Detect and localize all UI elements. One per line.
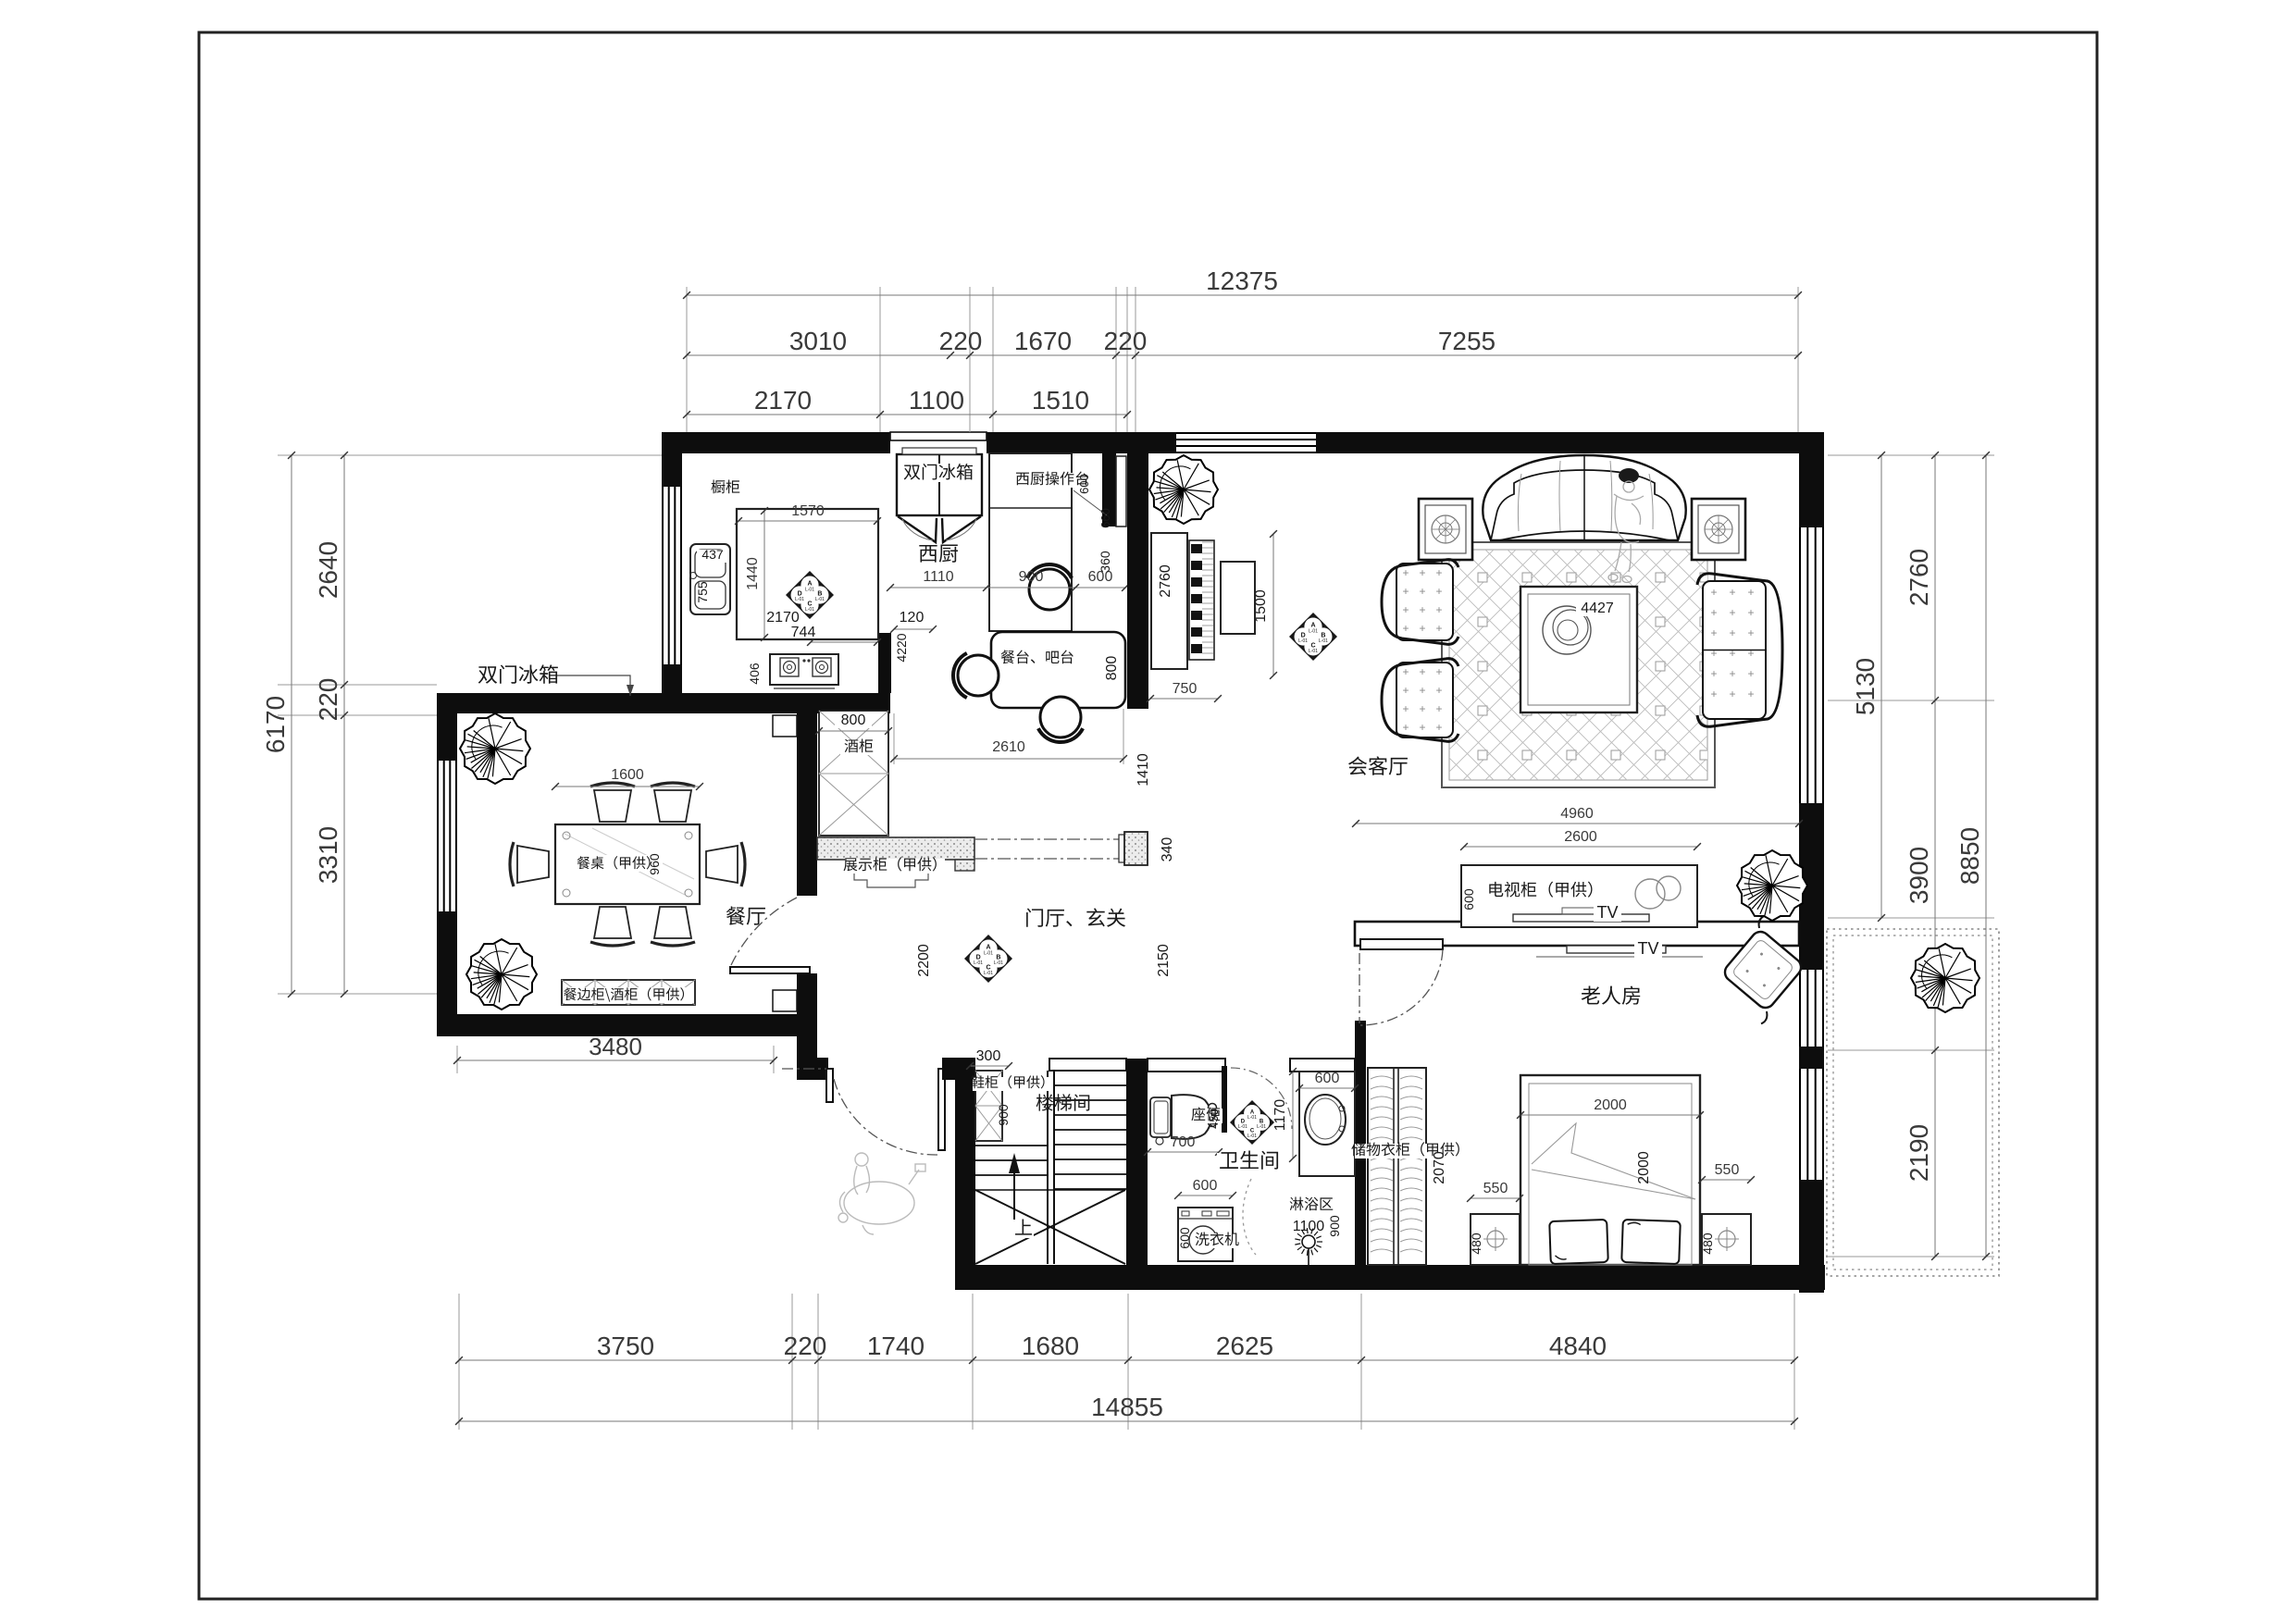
svg-text:600: 600 (1077, 474, 1091, 494)
svg-text:900: 900 (996, 1104, 1011, 1126)
svg-text:L-01: L-01 (795, 597, 804, 602)
svg-text:+: + (1747, 626, 1754, 639)
svg-text:220: 220 (314, 678, 342, 722)
svg-text:TV: TV (1596, 903, 1618, 922)
svg-text:L-01: L-01 (815, 597, 825, 602)
svg-text:+: + (1419, 665, 1425, 678)
svg-text:+: + (1435, 622, 1442, 635)
svg-text:L-01: L-01 (1298, 638, 1308, 644)
svg-text:2000: 2000 (1636, 1151, 1652, 1184)
svg-text:+: + (1435, 702, 1442, 715)
svg-text:L-01: L-01 (994, 960, 1003, 966)
svg-text:L-01: L-01 (1309, 649, 1318, 654)
svg-text:437: 437 (701, 547, 724, 562)
svg-text:L-01: L-01 (984, 971, 993, 976)
svg-text:4960: 4960 (1560, 806, 1594, 822)
svg-text:2760: 2760 (1905, 549, 1933, 606)
svg-text:+: + (1402, 665, 1409, 678)
svg-text:+: + (1402, 702, 1409, 715)
svg-text:+: + (1747, 647, 1754, 660)
svg-text:+: + (1747, 586, 1754, 599)
svg-text:3900: 3900 (1905, 847, 1933, 904)
svg-text:3750: 3750 (597, 1332, 654, 1360)
svg-text:2190: 2190 (1905, 1124, 1933, 1182)
svg-text:L-01: L-01 (1238, 1124, 1247, 1130)
svg-text:480: 480 (1469, 1233, 1483, 1255)
svg-text:+: + (1402, 622, 1409, 635)
svg-text:1570: 1570 (791, 503, 825, 519)
svg-text:2625: 2625 (1216, 1332, 1273, 1360)
svg-text:750: 750 (1173, 681, 1198, 697)
svg-text:600: 600 (1315, 1071, 1340, 1086)
svg-text:+: + (1419, 585, 1425, 598)
svg-text:+: + (1435, 665, 1442, 678)
svg-text:+: + (1419, 603, 1425, 616)
svg-text:+: + (1710, 606, 1717, 619)
svg-text:2150: 2150 (1156, 944, 1172, 977)
svg-text:406: 406 (747, 663, 762, 685)
svg-text:600: 600 (1193, 1178, 1218, 1194)
svg-text:1100: 1100 (909, 386, 964, 415)
svg-text:3310: 3310 (314, 826, 342, 884)
svg-text:+: + (1402, 721, 1409, 734)
svg-text:+: + (1435, 585, 1442, 598)
svg-text:L-01: L-01 (1319, 638, 1328, 644)
svg-text:+: + (1419, 684, 1425, 697)
svg-text:5130: 5130 (1851, 658, 1880, 715)
svg-text:+: + (1435, 684, 1442, 697)
svg-text:2600: 2600 (1564, 829, 1597, 845)
svg-text:2000: 2000 (1594, 1097, 1627, 1113)
svg-text:+: + (1402, 684, 1409, 697)
svg-text:+: + (1419, 702, 1425, 715)
svg-text:+: + (1435, 721, 1442, 734)
svg-text:+: + (1710, 647, 1717, 660)
svg-text:+: + (1402, 603, 1409, 616)
svg-text:14855: 14855 (1091, 1393, 1163, 1421)
svg-text:+: + (1710, 586, 1717, 599)
svg-text:2170: 2170 (766, 610, 800, 626)
svg-text:+: + (1435, 603, 1442, 616)
svg-text:2610: 2610 (992, 739, 1025, 755)
svg-text:900: 900 (1019, 569, 1044, 585)
svg-text:360: 360 (1098, 551, 1112, 573)
svg-text:+: + (1419, 566, 1425, 579)
svg-text:300: 300 (976, 1048, 1001, 1064)
svg-text:+: + (1729, 667, 1735, 680)
svg-text:744: 744 (791, 625, 816, 640)
svg-text:600: 600 (1177, 1227, 1192, 1249)
svg-text:900: 900 (1327, 1215, 1342, 1237)
svg-text:700: 700 (1171, 1134, 1196, 1150)
svg-text:800: 800 (841, 712, 866, 728)
svg-text:+: + (1419, 721, 1425, 734)
svg-text:4840: 4840 (1549, 1332, 1607, 1360)
svg-text:7255: 7255 (1438, 327, 1496, 355)
svg-text:2200: 2200 (916, 944, 932, 977)
svg-text:+: + (1402, 566, 1409, 579)
svg-text:550: 550 (1483, 1181, 1508, 1196)
svg-text:755: 755 (695, 581, 710, 603)
svg-text:1670: 1670 (1014, 327, 1072, 355)
svg-text:+: + (1729, 586, 1735, 599)
svg-text:2170: 2170 (754, 386, 812, 415)
svg-text:220: 220 (1104, 327, 1148, 355)
svg-text:660: 660 (1098, 508, 1112, 528)
svg-text:L-01: L-01 (805, 607, 814, 613)
svg-text:+: + (1710, 688, 1717, 700)
svg-text:480: 480 (1700, 1233, 1715, 1255)
svg-text:4220: 4220 (894, 633, 909, 662)
svg-text:600: 600 (1461, 888, 1476, 911)
svg-text:L-01: L-01 (1247, 1115, 1257, 1121)
svg-text:+: + (1435, 566, 1442, 579)
svg-text:8850: 8850 (1955, 827, 1984, 885)
svg-text:L-01: L-01 (805, 587, 814, 592)
svg-text:+: + (1402, 585, 1409, 598)
svg-text:220: 220 (939, 327, 983, 355)
svg-text:+: + (1710, 626, 1717, 639)
svg-text:+: + (1729, 647, 1735, 660)
svg-text:L-01: L-01 (1309, 628, 1318, 634)
svg-text:+: + (1419, 622, 1425, 635)
svg-text:+: + (1747, 688, 1754, 700)
svg-text:1440: 1440 (745, 557, 761, 590)
svg-text:L-01: L-01 (984, 950, 993, 956)
svg-text:1410: 1410 (1136, 753, 1151, 787)
svg-text:2070: 2070 (1432, 1151, 1447, 1184)
svg-text:1110: 1110 (923, 569, 953, 585)
svg-text:+: + (1729, 606, 1735, 619)
svg-text:1680: 1680 (1022, 1332, 1079, 1360)
svg-text:2760: 2760 (1158, 564, 1173, 598)
svg-text:+: + (1729, 688, 1735, 700)
svg-text:2640: 2640 (314, 541, 342, 599)
svg-text:1170: 1170 (1272, 1099, 1288, 1132)
svg-text:+: + (1747, 667, 1754, 680)
svg-text:800: 800 (1104, 656, 1120, 681)
svg-text:1740: 1740 (867, 1332, 925, 1360)
svg-text:+: + (1710, 667, 1717, 680)
svg-text:4427: 4427 (1581, 601, 1614, 616)
svg-text:L-01: L-01 (974, 960, 983, 966)
svg-text:340: 340 (1160, 837, 1175, 862)
svg-text:TV: TV (1637, 939, 1658, 958)
svg-text:1510: 1510 (1032, 386, 1089, 415)
svg-text:1100: 1100 (1293, 1219, 1325, 1234)
svg-text:L-01: L-01 (1247, 1134, 1257, 1139)
svg-text:1600: 1600 (611, 767, 644, 783)
svg-text:120: 120 (900, 610, 925, 626)
svg-text:L-01: L-01 (1257, 1124, 1266, 1130)
svg-text:+: + (1729, 626, 1735, 639)
svg-text:3480: 3480 (589, 1033, 642, 1060)
svg-text:220: 220 (784, 1332, 827, 1360)
svg-text:+: + (1747, 606, 1754, 619)
svg-text:450: 450 (1207, 1109, 1221, 1129)
svg-text:3010: 3010 (789, 327, 847, 355)
svg-text:12375: 12375 (1206, 266, 1278, 295)
svg-text:550: 550 (1715, 1162, 1740, 1178)
svg-text:960: 960 (647, 853, 662, 875)
svg-text:6170: 6170 (261, 696, 290, 753)
